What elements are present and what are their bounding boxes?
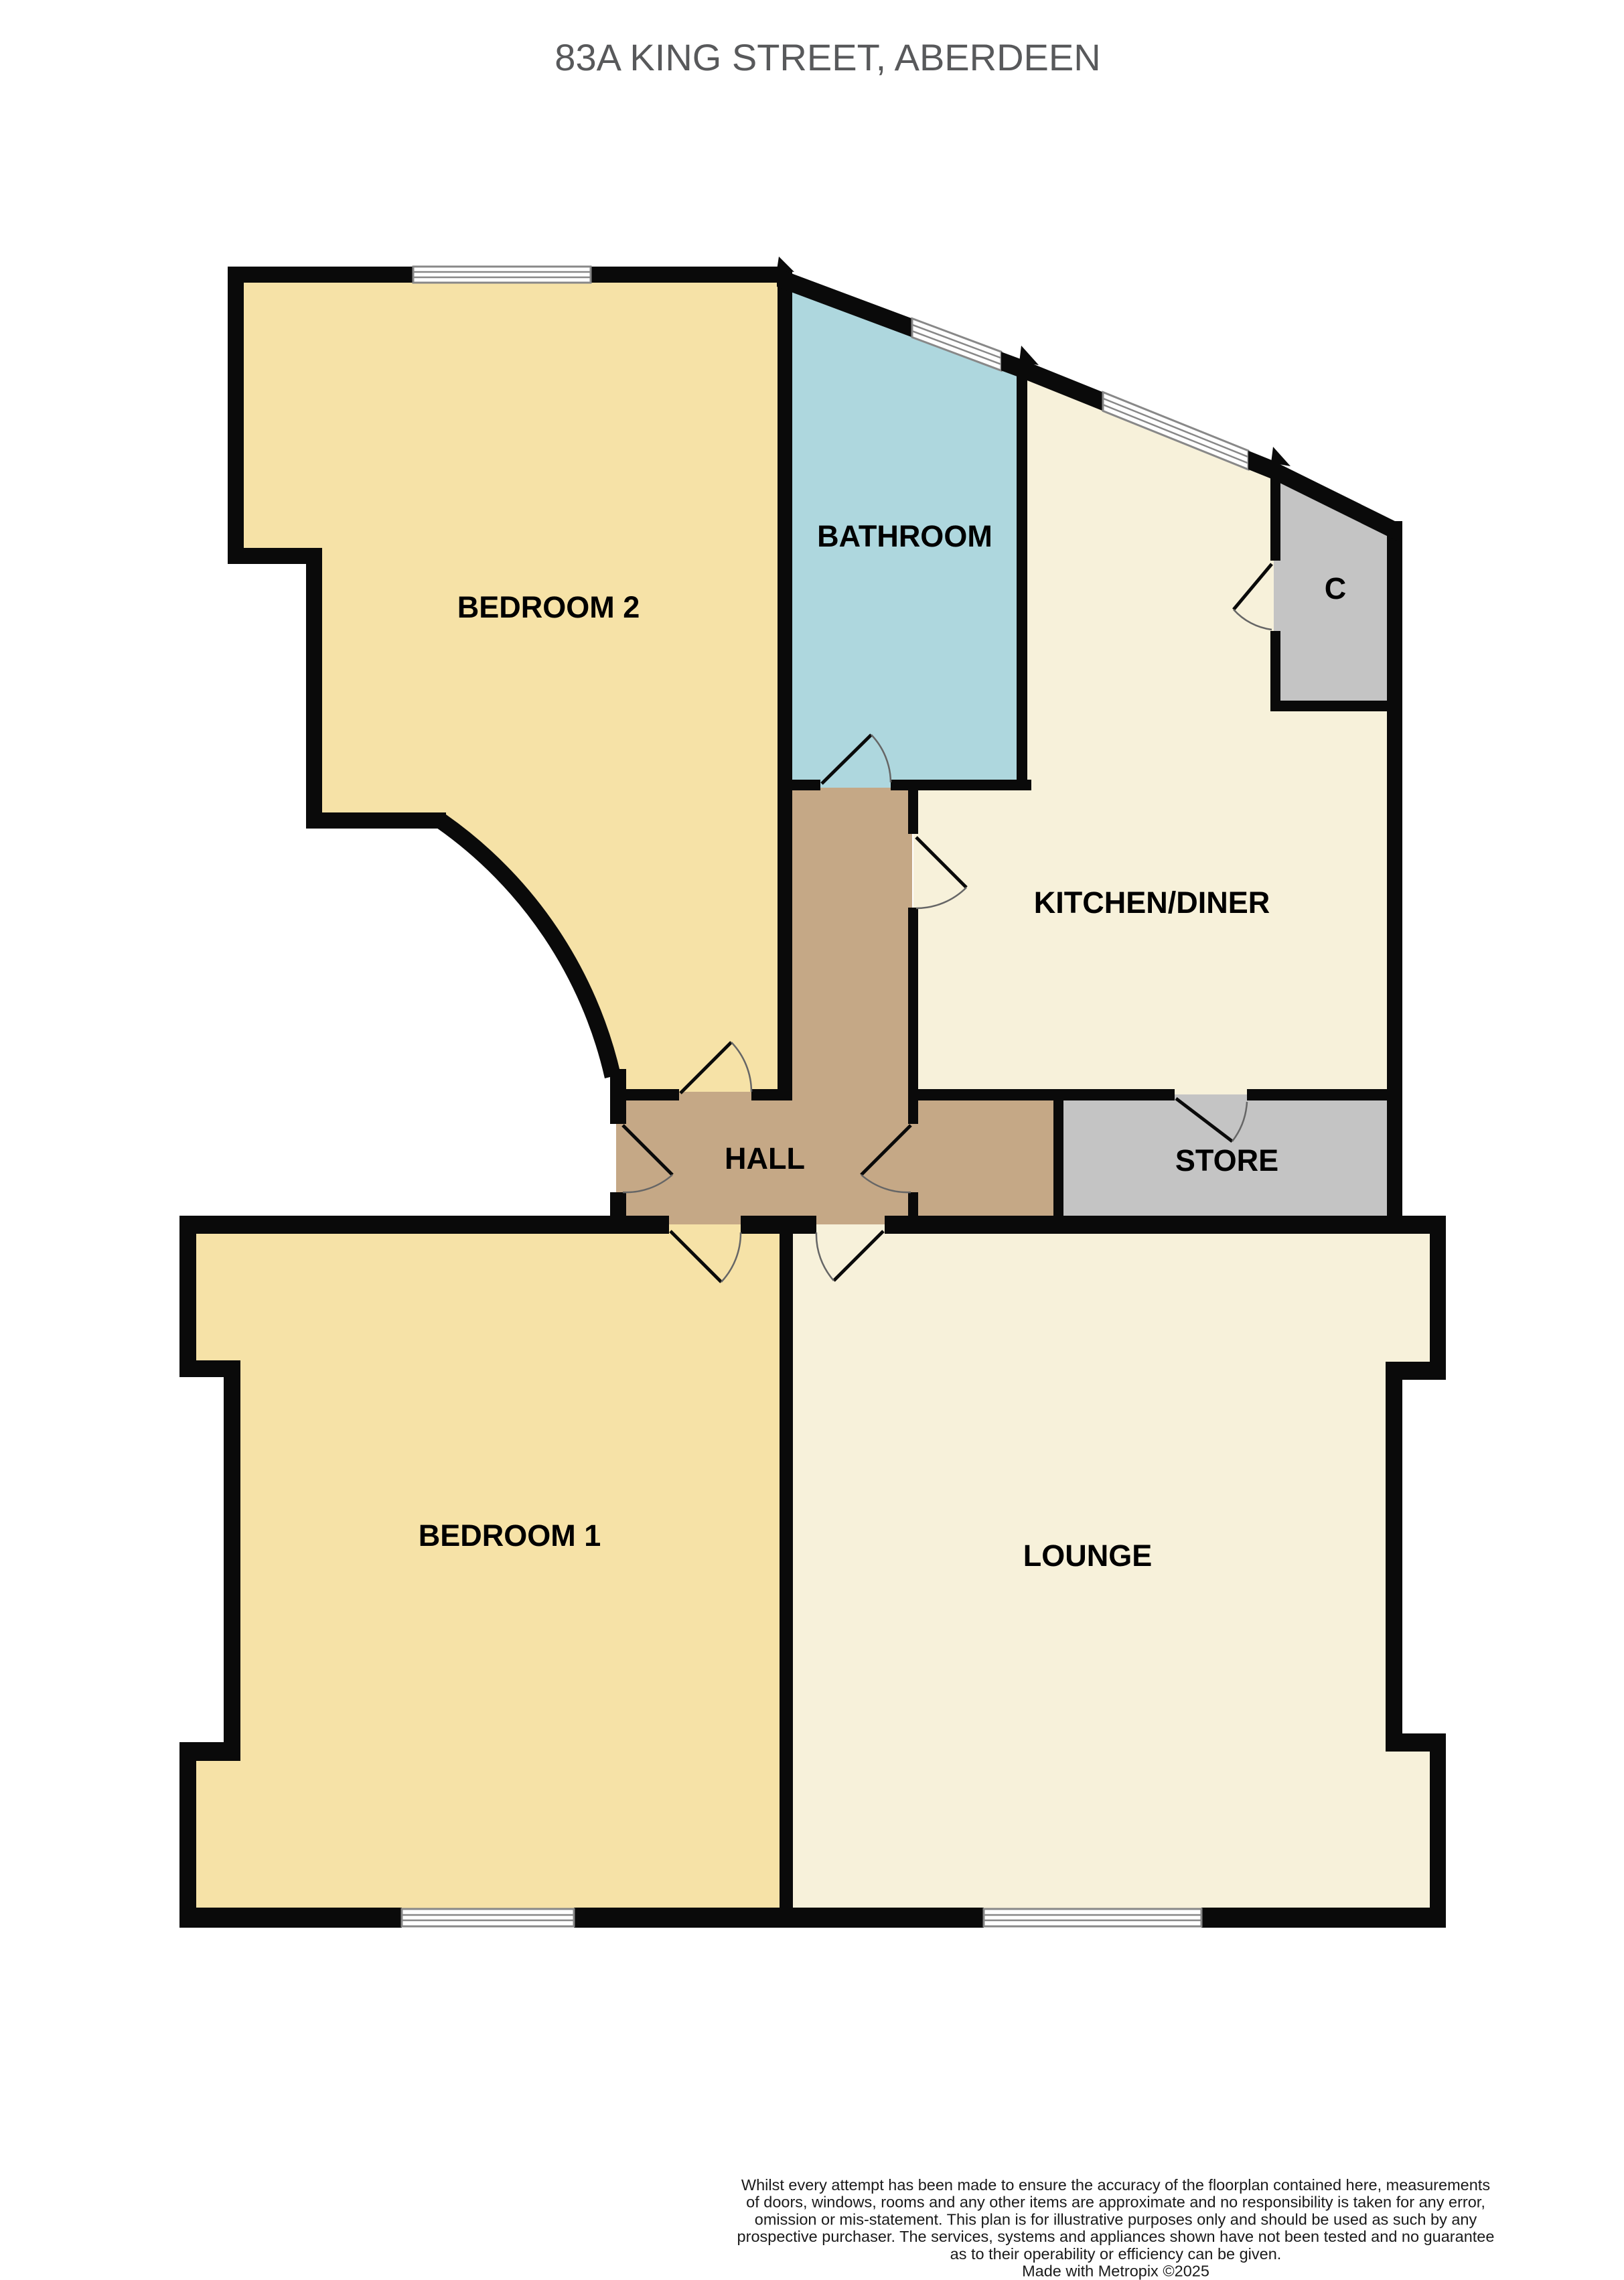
svg-text:BEDROOM 1: BEDROOM 1 bbox=[419, 1518, 601, 1553]
svg-text:HALL: HALL bbox=[725, 1141, 805, 1175]
svg-text:LOUNGE: LOUNGE bbox=[1023, 1539, 1153, 1573]
svg-text:BEDROOM 2: BEDROOM 2 bbox=[457, 590, 640, 624]
svg-text:KITCHEN/DINER: KITCHEN/DINER bbox=[1034, 885, 1270, 920]
svg-text:of doors, windows, rooms and a: of doors, windows, rooms and any other i… bbox=[746, 2194, 1485, 2211]
svg-text:Made with Metropix ©2025: Made with Metropix ©2025 bbox=[1022, 2263, 1209, 2280]
svg-text:prospective purchaser. The ser: prospective purchaser. The services, sys… bbox=[737, 2228, 1495, 2245]
svg-text:Whilst every attempt has been: Whilst every attempt has been made to en… bbox=[741, 2176, 1490, 2194]
svg-text:C: C bbox=[1325, 571, 1347, 605]
svg-text:STORE: STORE bbox=[1175, 1143, 1278, 1178]
svg-text:83A KING STREET, ABERDEEN: 83A KING STREET, ABERDEEN bbox=[555, 36, 1100, 78]
svg-text:BATHROOM: BATHROOM bbox=[817, 519, 992, 553]
svg-text:omission or mis-statement. Thi: omission or mis-statement. This plan is … bbox=[755, 2210, 1477, 2228]
svg-text:as to their operability or eff: as to their operability or efficiency ca… bbox=[950, 2245, 1282, 2263]
